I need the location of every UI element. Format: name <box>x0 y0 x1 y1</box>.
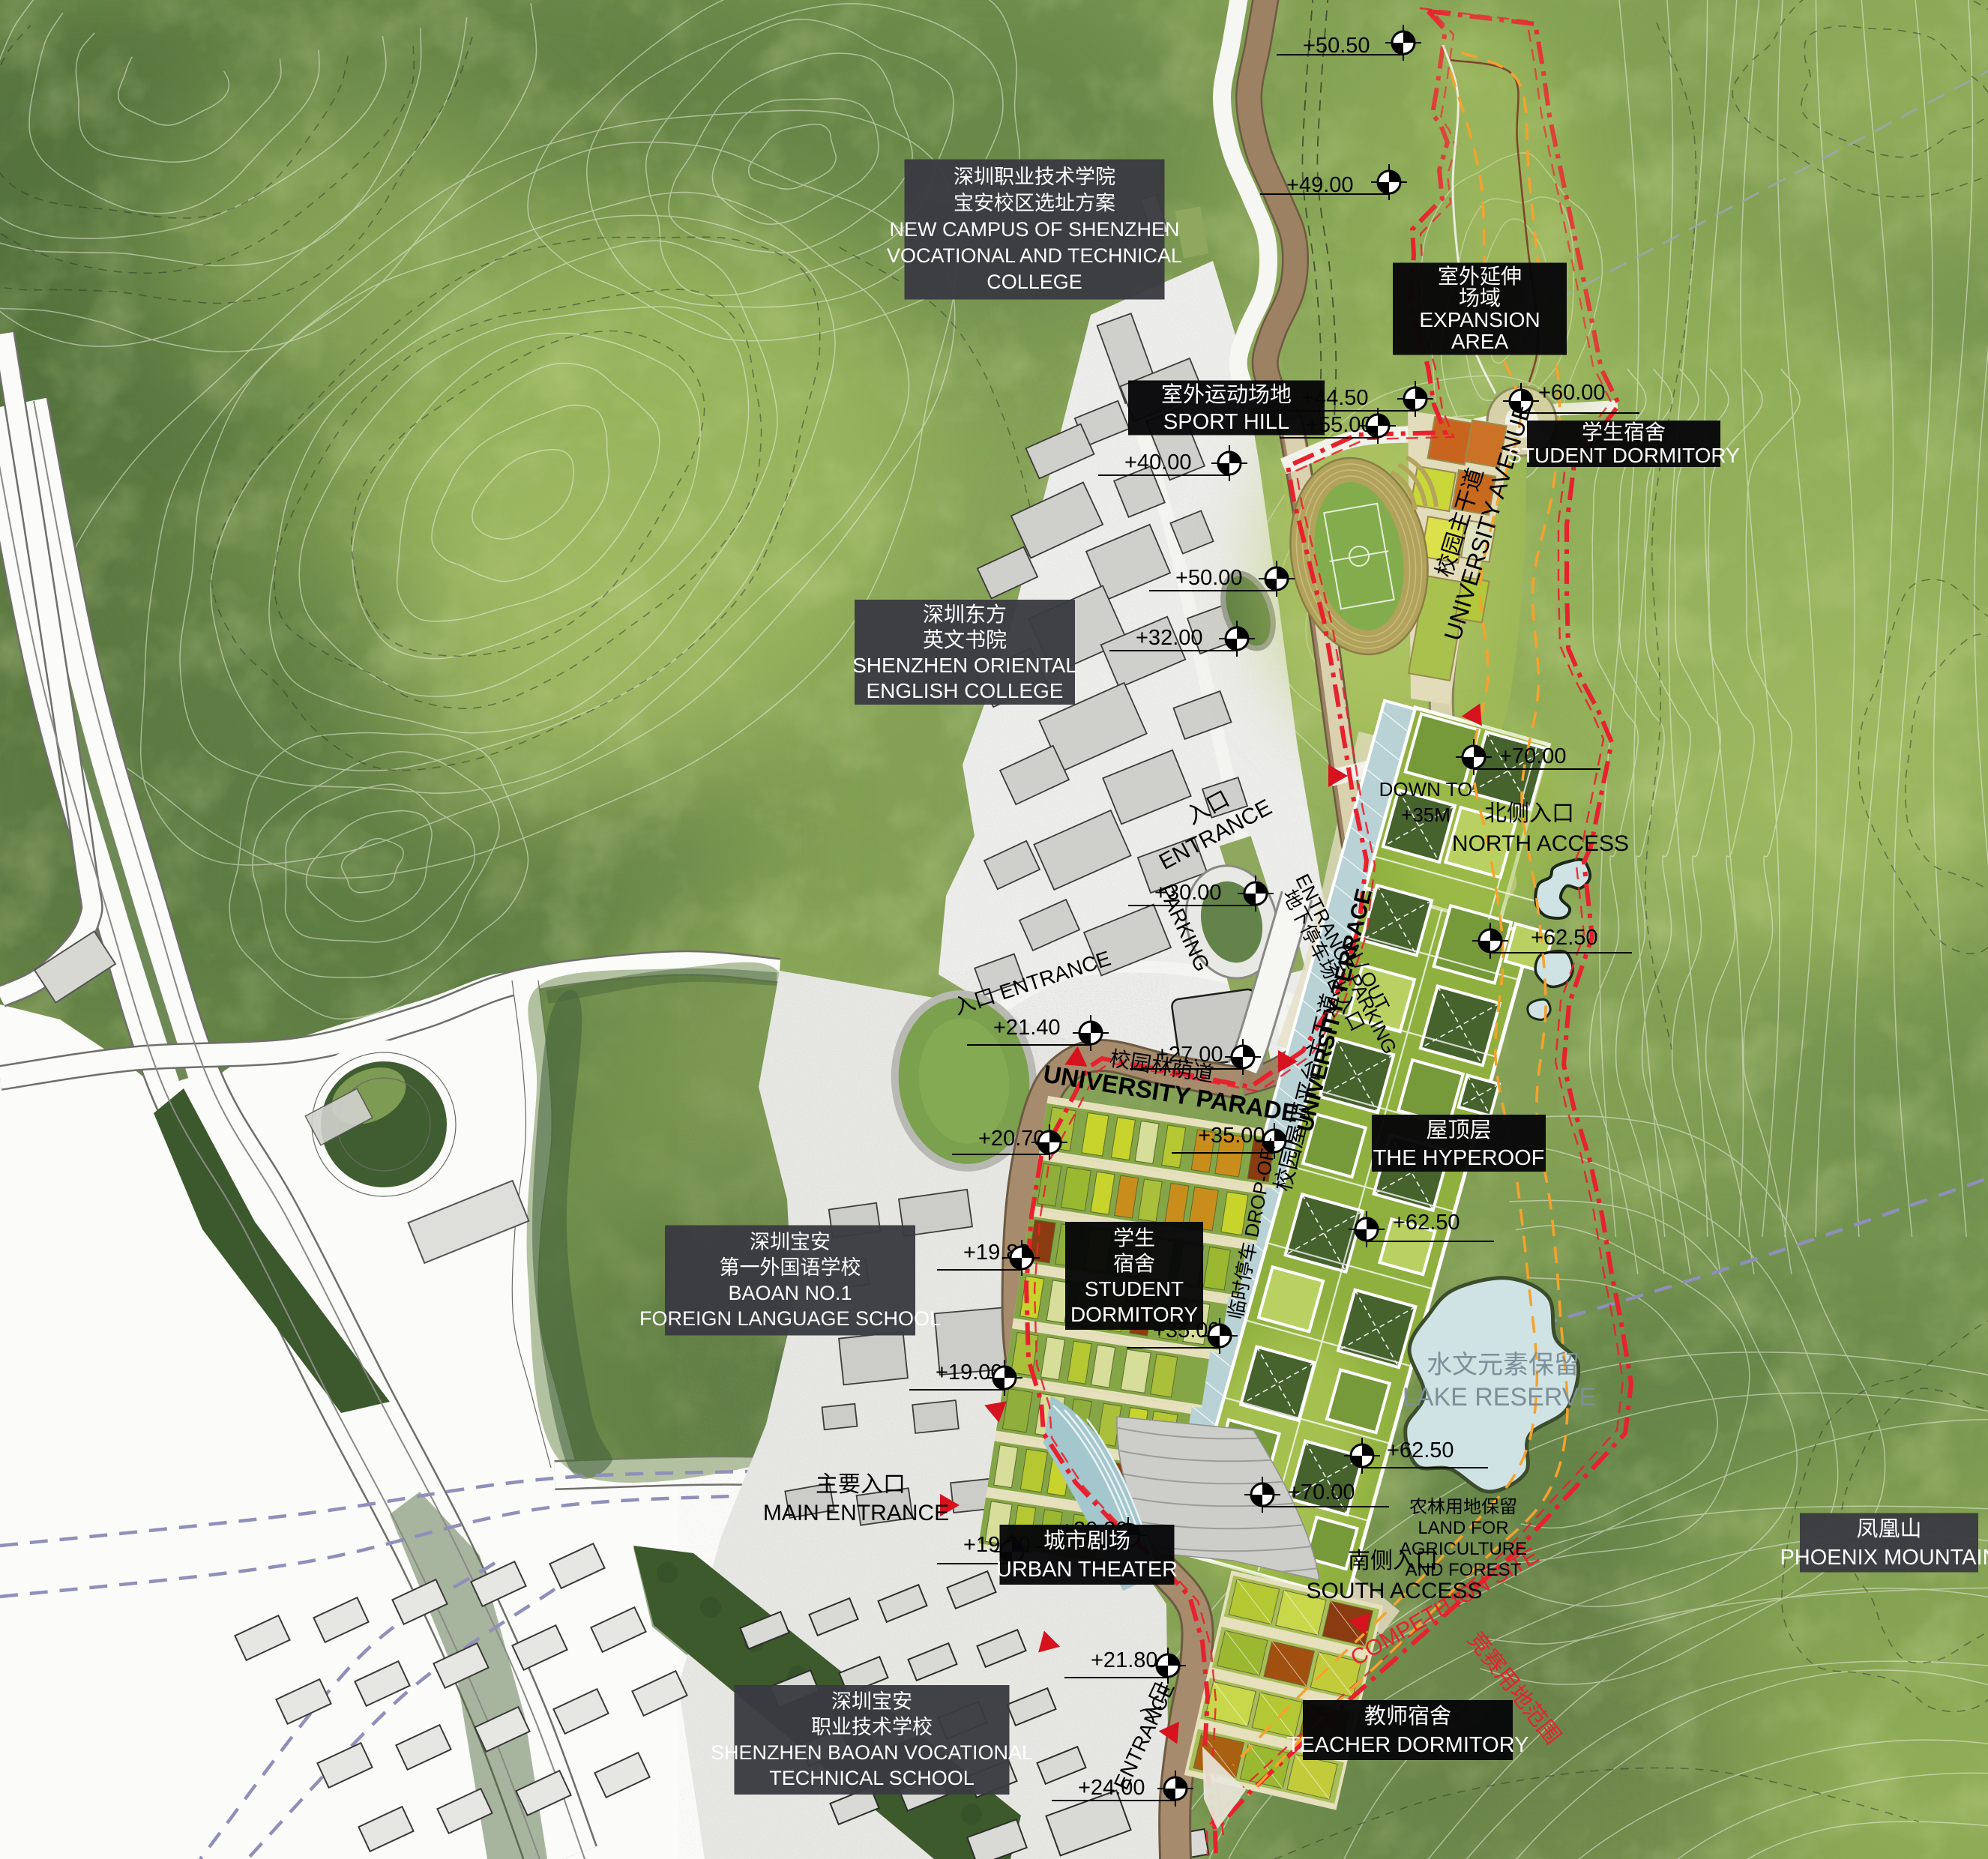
svg-text:TECHNICAL SCHOOL: TECHNICAL SCHOOL <box>769 1767 975 1789</box>
svg-text:TEACHER DORMITORY: TEACHER DORMITORY <box>1287 1733 1529 1757</box>
svg-text:AREA: AREA <box>1451 330 1509 353</box>
svg-text:学生宿舍: 学生宿舍 <box>1582 421 1666 444</box>
svg-text:室外运动场地: 室外运动场地 <box>1161 382 1292 407</box>
svg-text:室外延伸: 室外延伸 <box>1438 265 1522 288</box>
svg-text:城市剧场: 城市剧场 <box>1043 1528 1130 1553</box>
svg-text:+32.00: +32.00 <box>1136 626 1203 650</box>
svg-text:EXPANSION: EXPANSION <box>1419 308 1540 331</box>
svg-text:+35M: +35M <box>1401 804 1451 826</box>
svg-text:+35.00: +35.00 <box>1198 1124 1265 1148</box>
svg-text:+21.40: +21.40 <box>993 1016 1061 1040</box>
svg-text:场域: 场域 <box>1459 286 1501 310</box>
svg-text:英文书院: 英文书院 <box>923 628 1007 651</box>
svg-text:+50.50: +50.50 <box>1303 34 1370 58</box>
svg-text:STUDENT DORMITORY: STUDENT DORMITORY <box>1507 444 1740 467</box>
svg-text:+62.50: +62.50 <box>1393 1211 1460 1235</box>
svg-text:THE HYPEROOF: THE HYPEROOF <box>1373 1146 1545 1170</box>
svg-text:NORTH ACCESS: NORTH ACCESS <box>1452 831 1629 856</box>
svg-text:+62.50: +62.50 <box>1531 926 1598 950</box>
svg-text:+21.80: +21.80 <box>1091 1648 1158 1672</box>
svg-text:BAOAN NO.1: BAOAN NO.1 <box>728 1282 852 1304</box>
svg-text:深圳宝安: 深圳宝安 <box>750 1231 831 1253</box>
svg-text:STUDENT: STUDENT <box>1085 1277 1184 1301</box>
svg-text:教师宿舍: 教师宿舍 <box>1364 1704 1451 1729</box>
svg-text:+70.00: +70.00 <box>1499 744 1567 768</box>
svg-text:宝安校区选址方案: 宝安校区选址方案 <box>954 192 1115 214</box>
svg-text:NEW CAMPUS OF SHENZHEN: NEW CAMPUS OF SHENZHEN <box>889 218 1179 241</box>
svg-text:COLLEGE: COLLEGE <box>987 271 1082 293</box>
svg-text:凤凰山: 凤凰山 <box>1856 1517 1921 1541</box>
svg-text:SHENZHEN BAOAN VOCATIONAL: SHENZHEN BAOAN VOCATIONAL <box>711 1741 1033 1764</box>
svg-text:农林用地保留: 农林用地保留 <box>1409 1497 1517 1517</box>
svg-text:LAKE RESERVE: LAKE RESERVE <box>1403 1383 1596 1411</box>
svg-text:+62.50: +62.50 <box>1387 1438 1454 1462</box>
svg-text:深圳东方: 深圳东方 <box>923 603 1007 626</box>
svg-text:SHENZHEN ORIENTAL: SHENZHEN ORIENTAL <box>852 654 1077 677</box>
svg-text:深圳职业技术学院: 深圳职业技术学院 <box>954 166 1115 188</box>
svg-text:北侧入口: 北侧入口 <box>1484 801 1574 826</box>
svg-text:+70.00: +70.00 <box>1288 1480 1355 1504</box>
svg-text:宿舍: 宿舍 <box>1113 1252 1155 1275</box>
svg-text:屋顶层: 屋顶层 <box>1426 1118 1491 1142</box>
svg-text:主要入口: 主要入口 <box>816 1472 906 1497</box>
svg-text:MAIN ENTRANCE: MAIN ENTRANCE <box>763 1501 949 1525</box>
svg-text:DOWN TO: DOWN TO <box>1379 778 1473 801</box>
svg-text:SPORT HILL: SPORT HILL <box>1163 410 1289 434</box>
svg-text:第一外国语学校: 第一外国语学校 <box>720 1256 861 1279</box>
svg-text:+50.00: +50.00 <box>1175 566 1243 590</box>
svg-text:URBAN THEATER: URBAN THEATER <box>996 1558 1178 1582</box>
svg-text:AND FOREST: AND FOREST <box>1406 1560 1522 1580</box>
svg-text:PHOENIX MOUNTAIN: PHOENIX MOUNTAIN <box>1780 1546 1988 1570</box>
svg-text:SOUTH ACCESS: SOUTH ACCESS <box>1306 1579 1482 1603</box>
svg-text:+49.00: +49.00 <box>1286 173 1354 197</box>
svg-text:AGRICULTURE: AGRICULTURE <box>1400 1539 1527 1559</box>
svg-text:深圳宝安: 深圳宝安 <box>831 1690 912 1713</box>
svg-text:VOCATIONAL AND TECHNICAL: VOCATIONAL AND TECHNICAL <box>887 244 1182 267</box>
svg-text:水文元素保留: 水文元素保留 <box>1427 1351 1579 1379</box>
svg-text:+20.70: +20.70 <box>978 1127 1046 1151</box>
svg-text:学生: 学生 <box>1113 1226 1155 1250</box>
svg-text:ENGLISH COLLEGE: ENGLISH COLLEGE <box>867 679 1064 702</box>
svg-text:DORMITORY: DORMITORY <box>1070 1303 1198 1326</box>
svg-text:职业技术学校: 职业技术学校 <box>811 1716 933 1738</box>
svg-text:FOREIGN LANGUAGE SCHOOL: FOREIGN LANGUAGE SCHOOL <box>639 1307 941 1330</box>
svg-text:+40.00: +40.00 <box>1124 451 1192 474</box>
svg-text:+60.00: +60.00 <box>1538 381 1606 405</box>
svg-text:LAND FOR: LAND FOR <box>1418 1518 1508 1538</box>
